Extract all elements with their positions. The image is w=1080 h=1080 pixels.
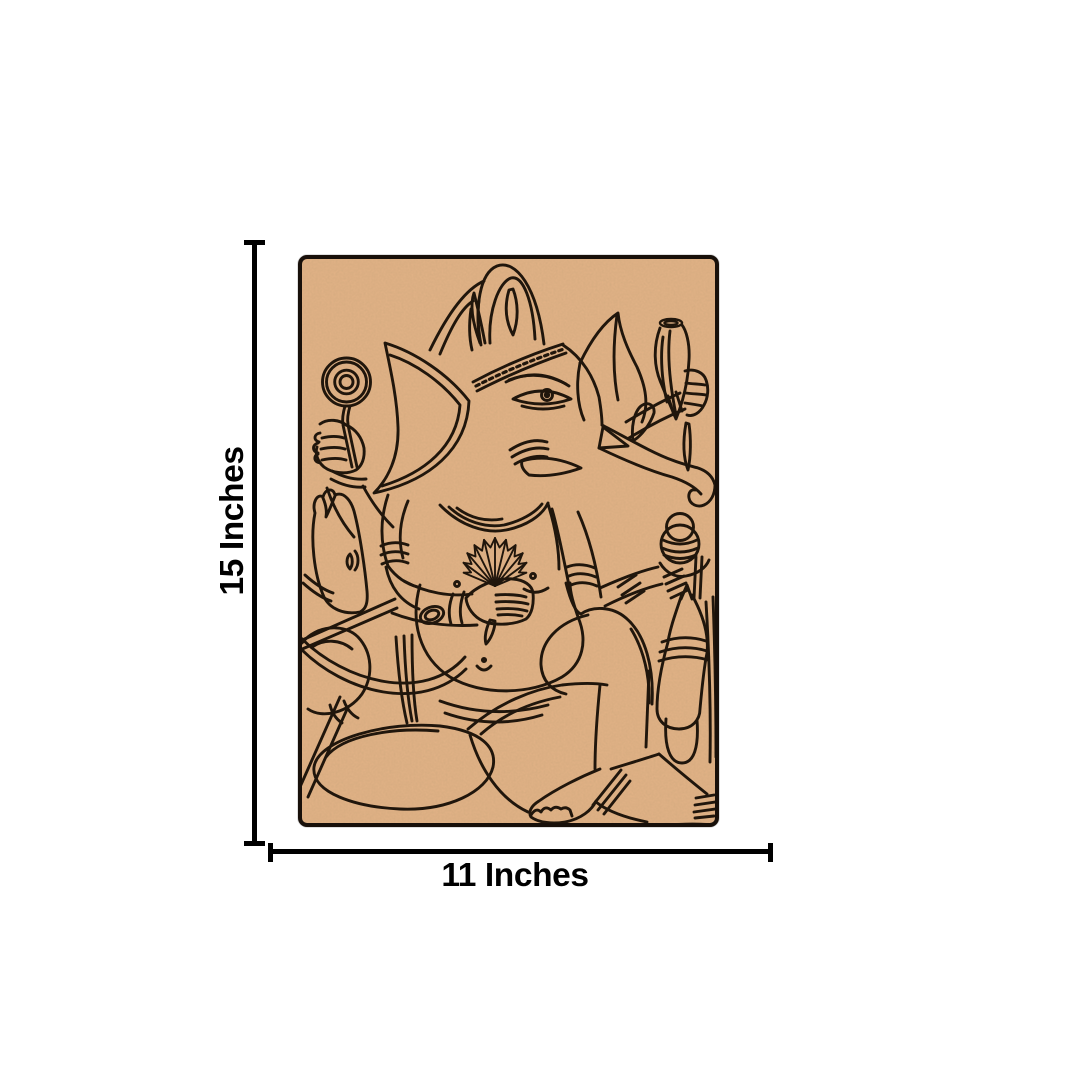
svg-text:15 Inches: 15 Inches bbox=[214, 446, 251, 595]
svg-text:11 Inches: 11 Inches bbox=[441, 857, 588, 894]
